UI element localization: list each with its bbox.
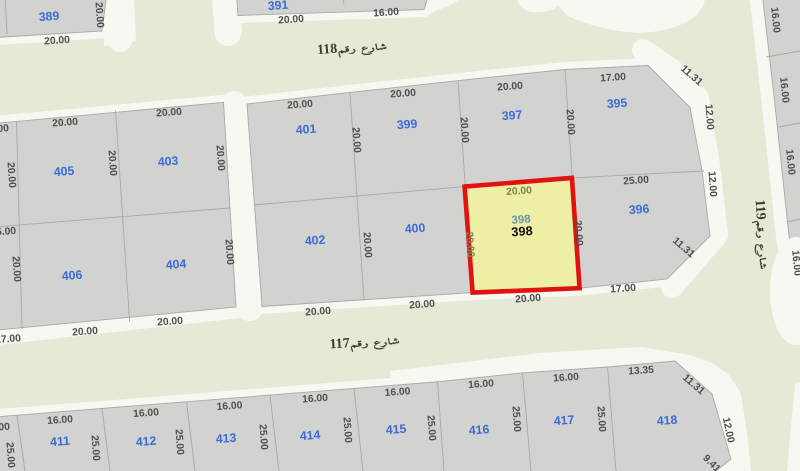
svg-text:25.00: 25.00 (257, 424, 270, 451)
svg-text:415: 415 (385, 422, 407, 437)
svg-text:16.00: 16.00 (553, 372, 580, 385)
svg-text:405: 405 (53, 164, 75, 179)
svg-text:20.00: 20.00 (156, 107, 183, 120)
svg-text:400: 400 (404, 221, 426, 236)
svg-text:25.00: 25.00 (595, 406, 608, 433)
svg-text:20.00: 20.00 (390, 88, 417, 101)
svg-text:404: 404 (165, 257, 187, 272)
svg-text:20.00: 20.00 (52, 117, 79, 130)
svg-text:20.00: 20.00 (564, 109, 577, 136)
svg-text:391: 391 (267, 0, 289, 13)
svg-text:411: 411 (50, 434, 71, 449)
svg-text:20.00: 20.00 (350, 127, 363, 154)
svg-text:25.00: 25.00 (173, 429, 186, 456)
svg-text:406: 406 (61, 268, 83, 283)
svg-text:20.00: 20.00 (572, 220, 585, 247)
svg-text:16.00: 16.00 (373, 7, 400, 20)
svg-text:17.00: 17.00 (0, 333, 22, 346)
svg-text:20.00: 20.00 (463, 231, 476, 258)
svg-text:20.00: 20.00 (515, 293, 542, 306)
svg-text:20.00: 20.00 (44, 35, 71, 48)
svg-text:20.00: 20.00 (93, 2, 106, 29)
svg-text:418: 418 (656, 413, 678, 428)
svg-text:20.00: 20.00 (0, 123, 10, 136)
svg-text:20.00: 20.00 (305, 306, 332, 319)
svg-text:16.00: 16.00 (384, 386, 411, 399)
svg-text:25.00: 25.00 (623, 175, 650, 188)
svg-text:412: 412 (135, 434, 157, 449)
svg-text:398: 398 (511, 223, 533, 239)
svg-text:20.00: 20.00 (506, 185, 533, 198)
svg-text:16.00: 16.00 (302, 393, 329, 406)
svg-text:20.00: 20.00 (223, 239, 236, 266)
svg-text:25.00: 25.00 (425, 415, 438, 442)
svg-text:17.00: 17.00 (600, 72, 627, 85)
svg-text:20.00: 20.00 (106, 150, 119, 177)
svg-text:417: 417 (553, 413, 575, 428)
svg-text:413: 413 (215, 431, 237, 446)
svg-text:20.00: 20.00 (409, 299, 436, 312)
svg-text:12.00: 12.00 (703, 104, 716, 131)
svg-text:403: 403 (157, 154, 179, 169)
svg-text:20.00: 20.00 (5, 162, 18, 189)
svg-text:16.00: 16.00 (133, 407, 160, 420)
svg-text:402: 402 (304, 233, 326, 248)
svg-text:20.00: 20.00 (10, 256, 23, 283)
svg-text:20.00: 20.00 (497, 81, 524, 94)
svg-text:414: 414 (299, 428, 321, 443)
svg-text:395: 395 (606, 96, 628, 111)
svg-text:20.00: 20.00 (214, 145, 227, 172)
svg-text:25.00: 25.00 (89, 435, 102, 462)
svg-text:399: 399 (396, 117, 418, 132)
svg-text:389: 389 (38, 9, 60, 24)
svg-text:20.00: 20.00 (278, 14, 305, 27)
svg-text:25.00: 25.00 (510, 406, 523, 433)
svg-text:16.00: 16.00 (47, 414, 74, 427)
svg-text:20.00: 20.00 (458, 117, 471, 144)
svg-text:118: 118 (317, 42, 338, 58)
svg-text:5.00: 5.00 (0, 226, 17, 238)
svg-text:119: 119 (752, 199, 768, 220)
svg-text:20.00: 20.00 (157, 316, 184, 329)
svg-text:20.00: 20.00 (361, 232, 374, 259)
svg-text:17.00: 17.00 (610, 283, 637, 296)
svg-text:16.00: 16.00 (468, 378, 495, 391)
svg-text:397: 397 (501, 108, 523, 123)
svg-text:396: 396 (628, 202, 650, 217)
svg-text:12.00: 12.00 (706, 171, 719, 198)
svg-text:416: 416 (468, 422, 490, 437)
svg-text:16.00: 16.00 (0, 422, 11, 435)
svg-text:20.00: 20.00 (287, 99, 314, 112)
svg-text:25.00: 25.00 (341, 417, 354, 444)
svg-text:13.35: 13.35 (628, 365, 655, 378)
svg-text:117: 117 (329, 336, 350, 352)
svg-text:20.00: 20.00 (72, 326, 99, 339)
svg-text:401: 401 (295, 122, 317, 137)
svg-text:25.00: 25.00 (4, 442, 17, 469)
svg-text:16.00: 16.00 (216, 400, 243, 413)
